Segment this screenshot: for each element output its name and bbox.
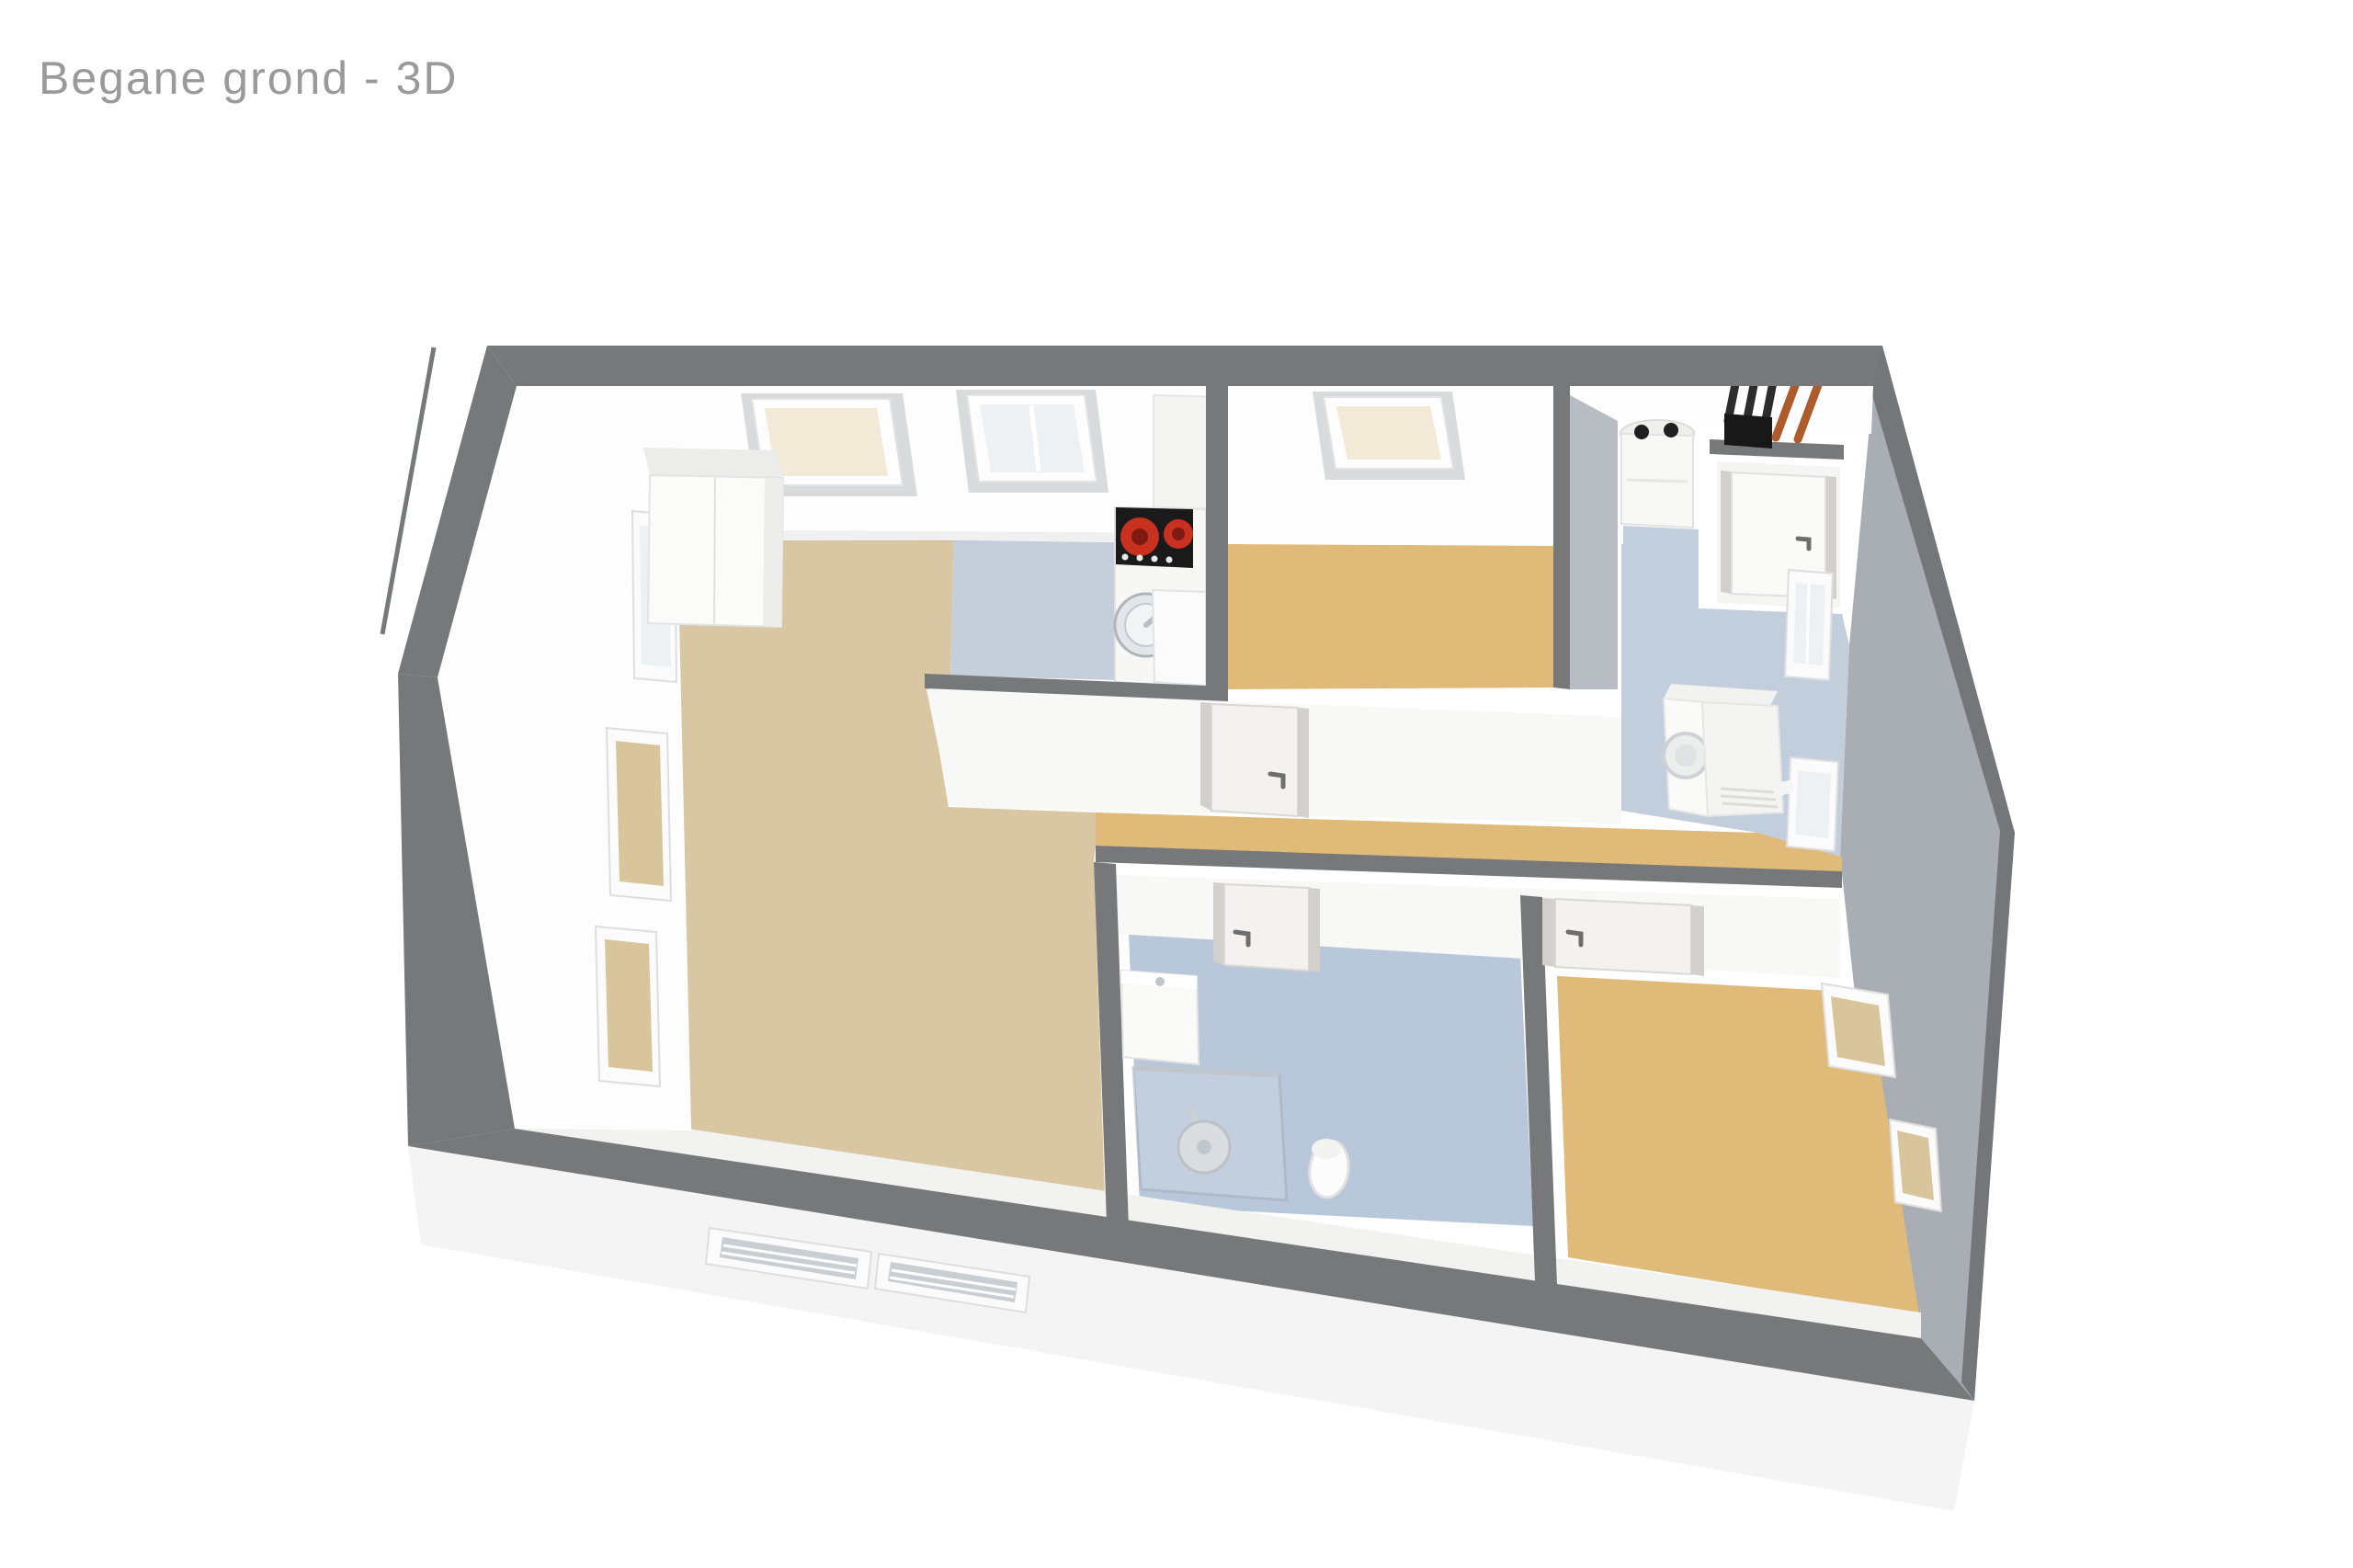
bedroom-1-east-wall-face	[1570, 395, 1618, 689]
cabinet-door-seam	[714, 477, 715, 625]
washing-machine-door-glass	[1675, 744, 1697, 767]
bedroom2-door	[1555, 899, 1691, 974]
floor-bedroom-1	[1228, 544, 1553, 689]
wall-bedroom1-east	[1553, 386, 1570, 689]
skylight-1-blind	[765, 408, 888, 476]
bedroom1-door-frame	[1298, 708, 1309, 818]
boiler-flue-port	[1664, 423, 1678, 437]
shower-head-center	[1197, 1140, 1211, 1154]
bedroom2-door-frame	[1691, 905, 1704, 976]
boiler-flue-port	[1634, 425, 1649, 439]
window-left-3-blind	[605, 939, 653, 1072]
bathroom-door-frame	[1309, 888, 1320, 972]
bathroom-door-frame	[1213, 882, 1224, 966]
skylight-3-blind	[1336, 406, 1441, 460]
toilet-tank	[1312, 1139, 1341, 1159]
boiler-seam	[1627, 480, 1688, 482]
window-right-2-pane	[1795, 770, 1831, 838]
window-right-4-blind	[1897, 1131, 1934, 1200]
cabinet-side-shade	[763, 478, 783, 627]
pipe-manifold	[1724, 414, 1772, 449]
hob-knob	[1166, 557, 1173, 563]
living-room-cabinet	[643, 448, 783, 627]
floorplan-3d-render	[0, 0, 2353, 1568]
window-right-1-mullion	[1807, 584, 1809, 664]
screenshot-root: { "title": { "text": "Begane grond - 3D"…	[0, 0, 2353, 1568]
window-left-2-blind	[616, 741, 664, 886]
hob-knob	[1152, 556, 1158, 562]
north-wall-top	[487, 346, 1882, 386]
closet-door-frame	[1721, 471, 1732, 594]
wall-kitchen-bedroom1	[1206, 386, 1228, 689]
cabinet-top	[643, 448, 783, 478]
bedroom1-door-frame	[1200, 702, 1211, 811]
washbasin-faucet	[1155, 977, 1165, 986]
hob-knob	[1122, 554, 1129, 561]
hob-knob	[1137, 555, 1143, 562]
floor-kitchen	[950, 540, 1115, 680]
bathroom-door	[1224, 884, 1309, 971]
hob-burner-small-core	[1172, 528, 1185, 540]
window-right-3-blind	[1831, 996, 1885, 1066]
bedroom1-door	[1211, 704, 1298, 816]
kitchen-base-cabinet	[1153, 590, 1206, 686]
bedroom2-door-frame	[1542, 898, 1555, 967]
hob-burner-large-core	[1131, 528, 1148, 545]
